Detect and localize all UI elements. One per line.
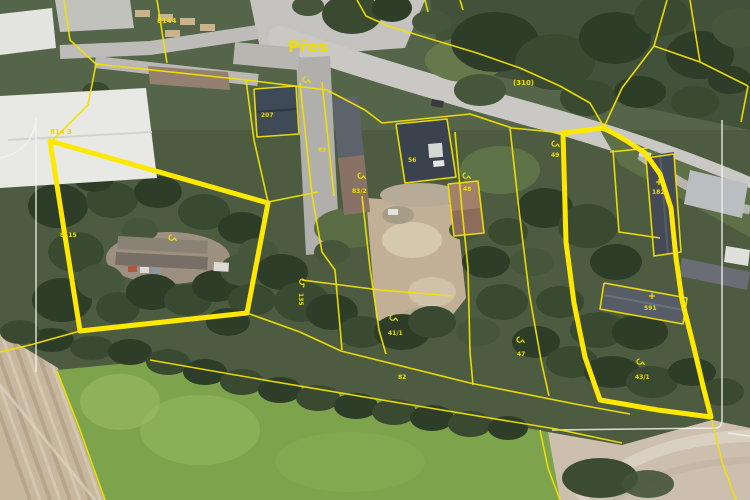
parcel-number-label: 83/2	[352, 188, 367, 195]
parcel-number-label: 83	[318, 147, 326, 154]
aerial-photo	[0, 0, 750, 500]
parcel-number-label: 135	[297, 293, 304, 306]
aerial-map[interactable]: Přes8144814 38115(310)2078383/2564849182…	[0, 0, 750, 500]
parcel-number-label: 47	[517, 351, 525, 358]
warehouse-roof	[0, 88, 157, 188]
parcel-number-label: 49	[551, 152, 559, 159]
parcel-number-label: 56	[408, 157, 416, 164]
parcel-number-label: 41/1	[388, 330, 403, 337]
parcel-number-label: 8115	[60, 232, 77, 239]
parcel-number-label: 182	[652, 189, 665, 196]
place-name-label: Přes	[288, 37, 328, 56]
parcel-number-label: 82	[398, 374, 406, 381]
parcel-number-label: 591	[644, 305, 657, 312]
parcel-number-label: 8144	[157, 17, 177, 25]
map-viewport[interactable]: Přes8144814 38115(310)2078383/2564849182…	[0, 0, 750, 500]
building-56	[396, 119, 456, 183]
parcel-number-label: 48	[463, 186, 471, 193]
parcel-number-label: 207	[261, 112, 274, 119]
parcel-number-label: 43/1	[635, 374, 650, 381]
parcel-number-label: 814 3	[50, 128, 72, 136]
parcel-number-label: (310)	[513, 79, 534, 87]
